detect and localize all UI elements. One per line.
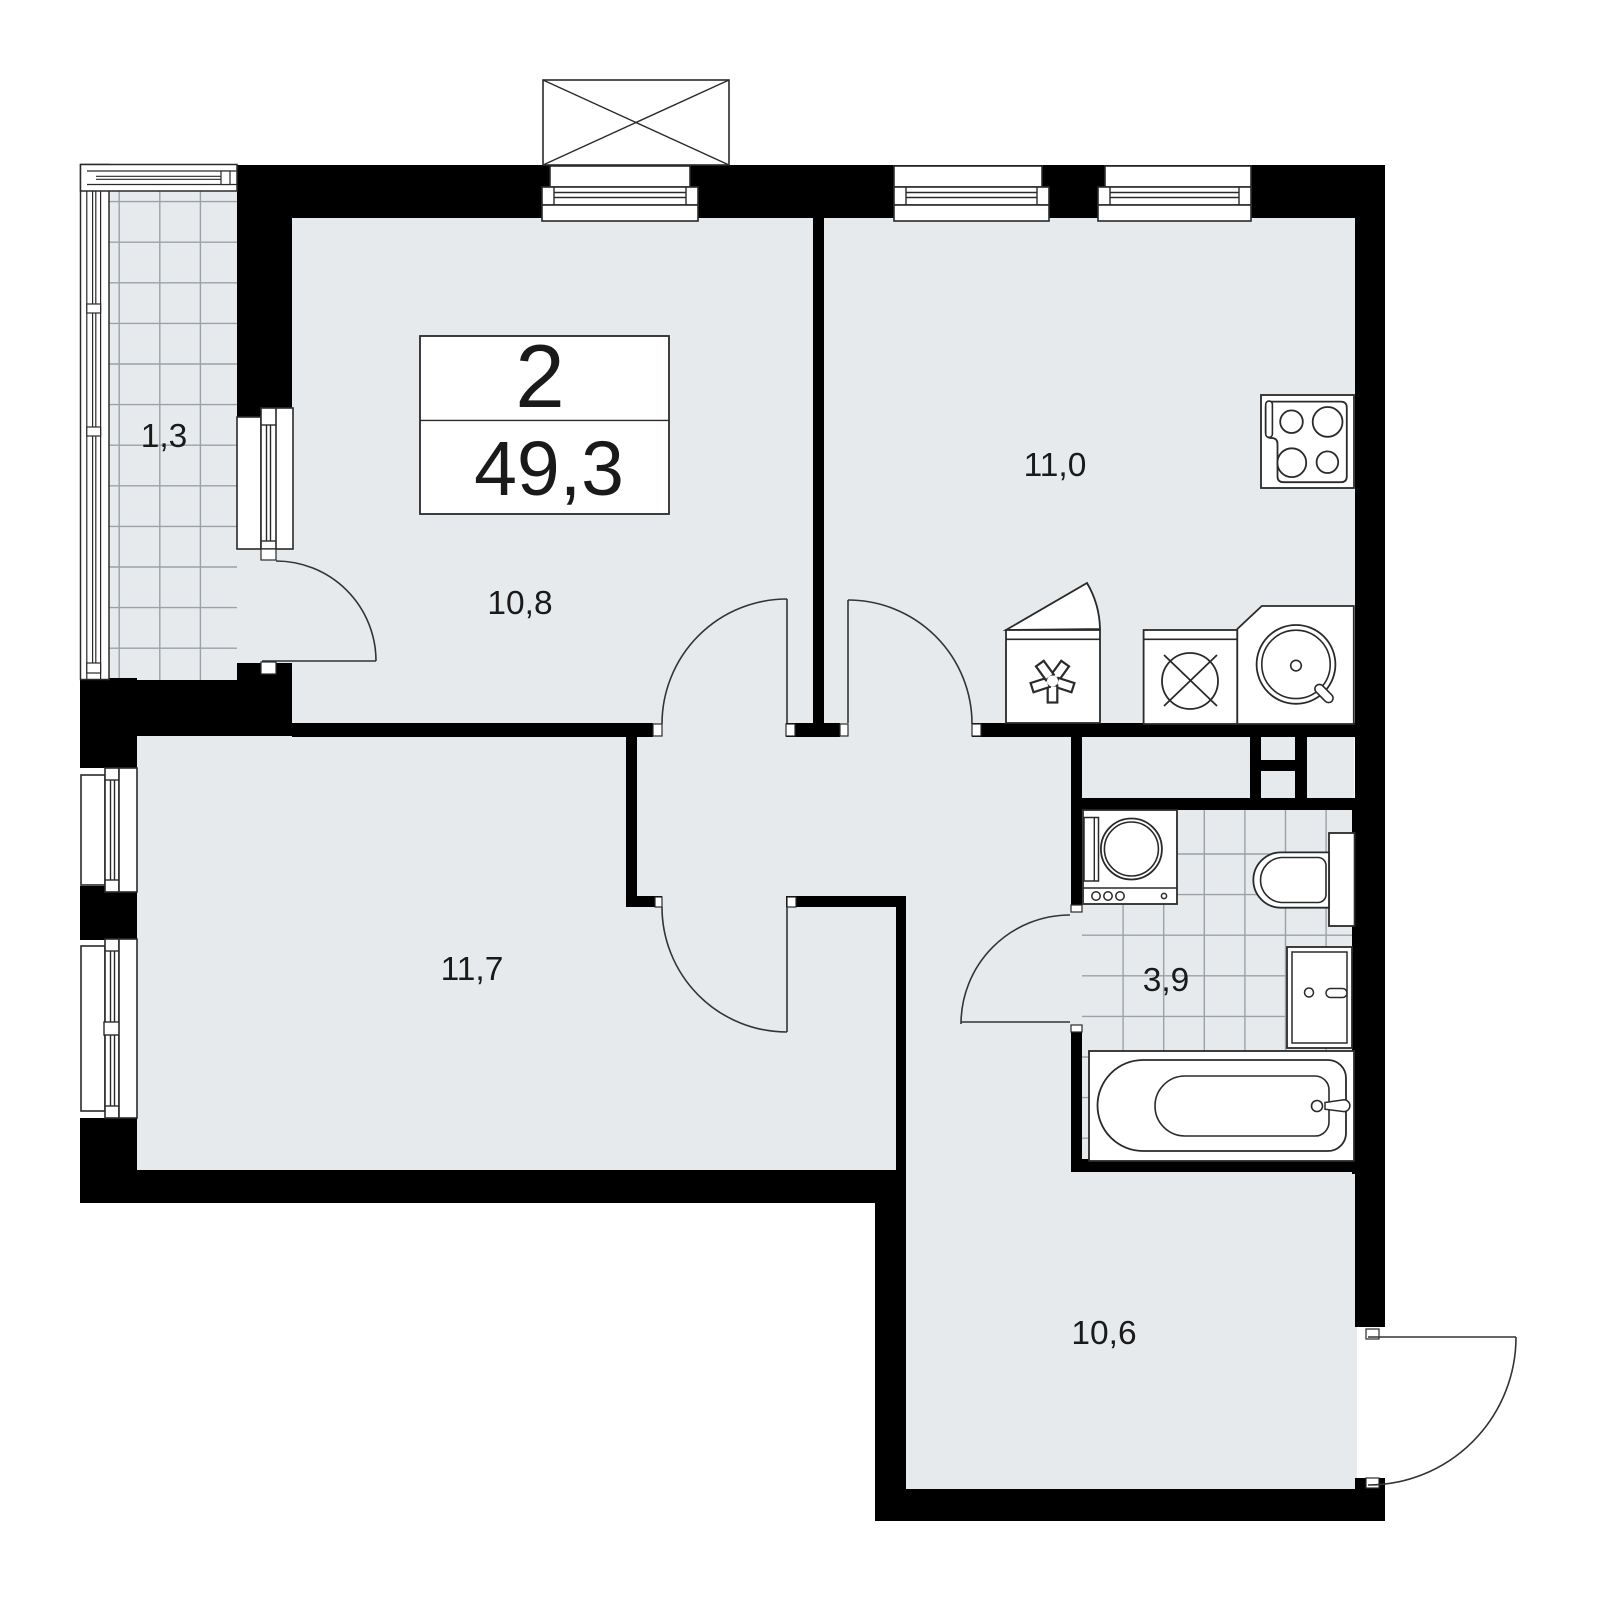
svg-text:10,8: 10,8 (487, 585, 552, 622)
svg-text:49,3: 49,3 (474, 426, 624, 512)
svg-text:11,0: 11,0 (1024, 447, 1087, 484)
svg-text:10,6: 10,6 (1071, 1315, 1136, 1352)
svg-text:11,7: 11,7 (441, 951, 504, 988)
svg-text:3,9: 3,9 (1143, 962, 1190, 999)
svg-text:1,3: 1,3 (141, 418, 188, 455)
svg-text:2: 2 (515, 326, 565, 426)
